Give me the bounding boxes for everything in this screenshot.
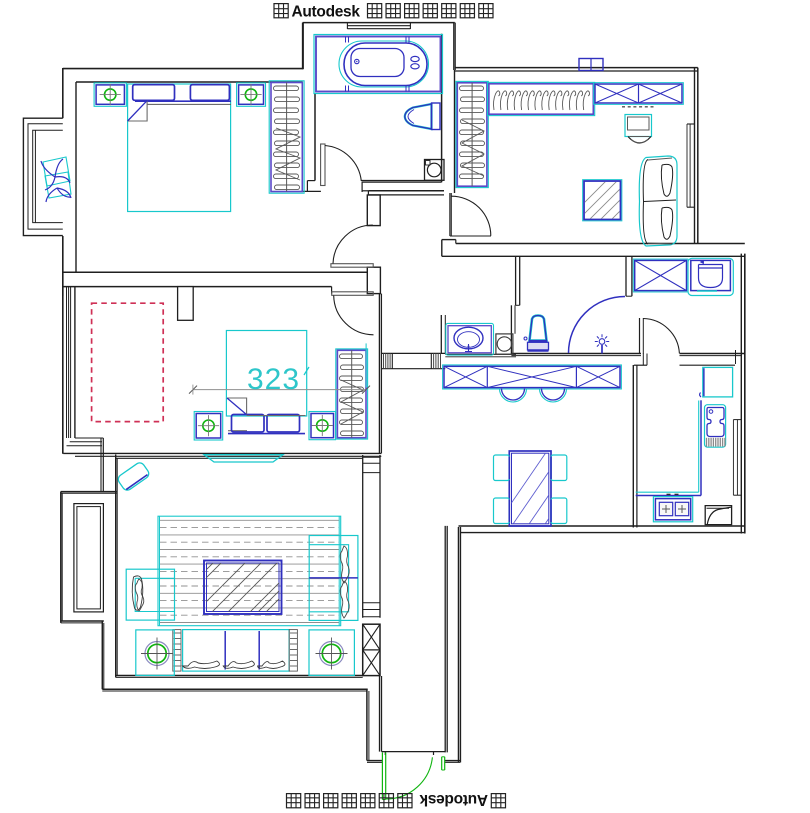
svg-text:Autodesk: Autodesk: [292, 3, 361, 20]
svg-text:Autodesk: Autodesk: [419, 791, 488, 808]
svg-text:323: 323: [247, 363, 300, 396]
